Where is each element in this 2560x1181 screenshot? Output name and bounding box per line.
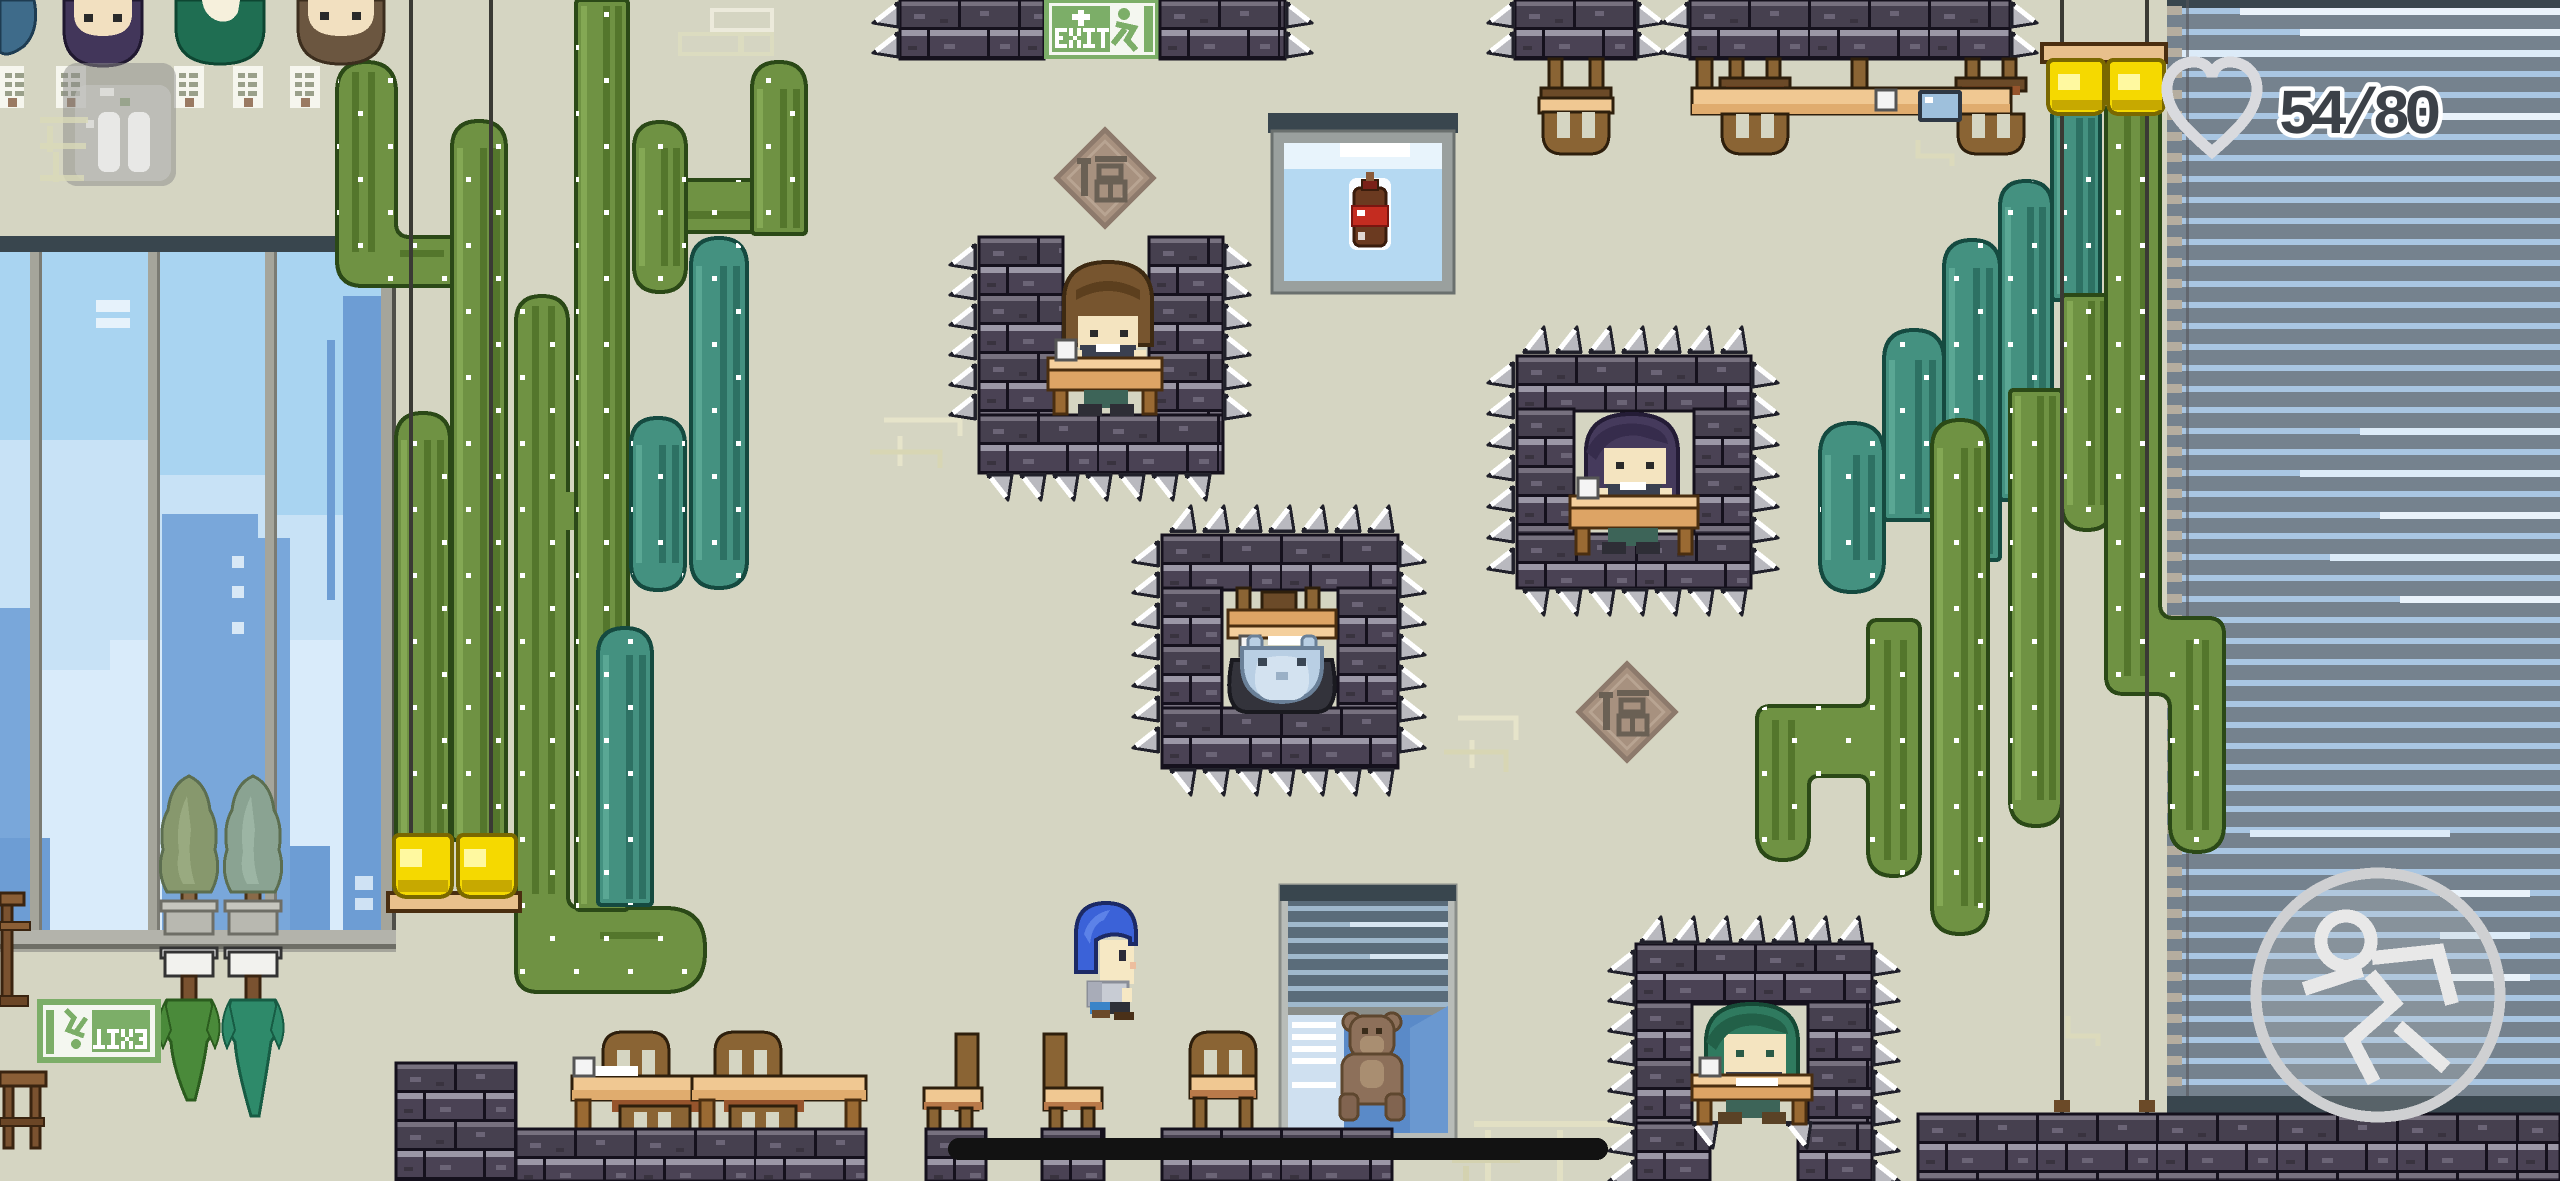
svg-text:54/80: 54/80 (2278, 81, 2439, 153)
